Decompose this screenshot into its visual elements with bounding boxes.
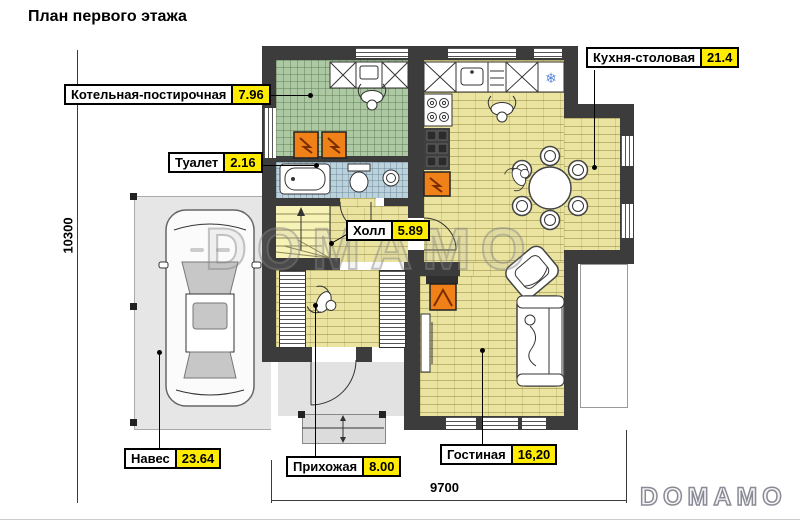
room-name: Туалет — [168, 152, 225, 173]
leader-line — [482, 350, 483, 446]
leader-dot — [313, 303, 318, 308]
room-name: Прихожая — [286, 456, 364, 477]
floor-toilet — [276, 162, 408, 198]
room-name: Кухня-столовая — [586, 47, 702, 68]
floor-plan-canvas: План первого этажа — [0, 0, 800, 525]
wall-segment — [620, 104, 634, 264]
room-label-toilet: Туалет 2.16 — [168, 152, 263, 173]
floor-door-strip — [340, 198, 376, 208]
leader-dot — [308, 93, 313, 98]
leader-dot — [480, 348, 485, 353]
porch-post — [379, 411, 386, 418]
room-label-carport: Навес 23.64 — [124, 448, 221, 469]
window — [534, 48, 562, 58]
dimension-extension — [271, 460, 272, 503]
wall-segment — [564, 250, 578, 430]
leader-dot — [157, 350, 162, 355]
room-area-badge: 21.4 — [702, 47, 739, 68]
room-label-hall: Холл 5.89 — [346, 220, 430, 241]
room-label-living: Гостиная 16,20 — [440, 444, 557, 465]
carport-post — [130, 303, 137, 310]
room-label-kitchen: Кухня-столовая 21.4 — [586, 47, 739, 68]
window — [446, 417, 476, 429]
porch-area — [278, 362, 404, 416]
wall-segment — [276, 156, 408, 162]
window — [356, 48, 408, 58]
room-area-badge: 7.96 — [233, 84, 270, 105]
terrace-outline — [580, 264, 628, 408]
room-area-badge: 23.64 — [177, 448, 222, 469]
wall-segment — [384, 198, 408, 206]
window — [522, 417, 546, 429]
floor-dining-wing — [564, 118, 620, 250]
leader-dot — [329, 241, 334, 246]
room-label-boiler: Котельная-постирочная 7.96 — [64, 84, 271, 105]
room-area-badge: 5.89 — [393, 220, 430, 241]
wall-segment — [276, 198, 340, 206]
room-area-badge: 16,20 — [513, 444, 558, 465]
wall-segment — [564, 46, 578, 118]
leader-line — [594, 70, 595, 168]
wall-segment — [404, 262, 420, 418]
window — [621, 204, 633, 238]
leader-dot — [314, 163, 319, 168]
carport-post — [130, 419, 137, 426]
wall-segment — [262, 347, 312, 362]
page-title: План первого этажа — [28, 8, 187, 26]
bottom-divider — [0, 519, 800, 520]
room-area-badge: 2.16 — [225, 152, 262, 173]
dimension-line-vertical — [77, 50, 78, 503]
porch-post — [298, 411, 305, 418]
wall-segment — [262, 46, 578, 60]
dimension-width: 9700 — [430, 480, 459, 495]
window — [448, 48, 516, 58]
carport-post — [130, 193, 137, 200]
window — [482, 417, 518, 429]
window — [621, 136, 633, 166]
leader-line — [159, 352, 160, 450]
room-area-badge: 8.00 — [364, 456, 401, 477]
room-name: Котельная-постирочная — [64, 84, 233, 105]
leader-line — [315, 305, 316, 458]
wall-segment — [408, 60, 424, 208]
window — [264, 108, 276, 158]
dimension-height: 10300 — [61, 206, 76, 266]
floor-living — [420, 276, 564, 416]
leader-dot — [592, 165, 597, 170]
floor-boiler-room — [276, 60, 408, 158]
wall-segment — [356, 347, 372, 362]
dimension-extension — [626, 430, 627, 503]
room-name: Холл — [346, 220, 393, 241]
dimension-line-horizontal — [271, 500, 627, 501]
room-name: Навес — [124, 448, 177, 469]
room-name: Гостиная — [440, 444, 513, 465]
brand-logo: DOMAMO — [640, 483, 787, 512]
room-label-entry: Прихожая 8.00 — [286, 456, 401, 477]
